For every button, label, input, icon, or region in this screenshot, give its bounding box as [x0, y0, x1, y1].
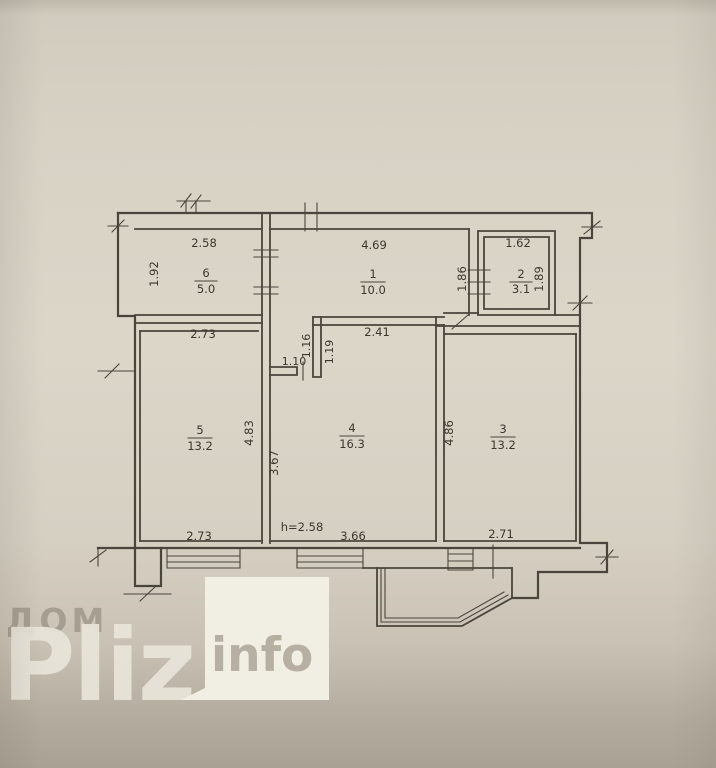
room6-left-dim: 1.92 — [147, 261, 161, 287]
watermark-pliz-text: Pliz — [2, 616, 194, 716]
room6-area: 5.0 — [197, 282, 215, 296]
room3-number: 3 — [499, 422, 506, 436]
room2-top-dim: 1.62 — [505, 236, 531, 250]
room5-area: 13.2 — [187, 439, 213, 453]
room6-number: 6 — [202, 266, 209, 280]
room5-bottom-dim: 2.73 — [186, 529, 212, 543]
room4-bottom-dim: 3.66 — [340, 529, 366, 543]
room4-top-dim: 2.41 — [364, 325, 390, 339]
room2-right-dim: 1.89 — [532, 266, 546, 292]
window-room5 — [167, 548, 240, 568]
room3-bottom-dim: 2.71 — [488, 527, 514, 541]
room5-right-dim: 4.83 — [242, 420, 256, 446]
room4-area: 16.3 — [339, 437, 365, 451]
room1-top-dim: 4.69 — [361, 238, 387, 252]
room6-top-dim: 2.58 — [191, 236, 217, 250]
room4-left-dim: 3.67 — [267, 450, 281, 476]
window-balcony-door-unit — [448, 548, 473, 570]
watermark-info-box: info — [205, 577, 329, 700]
room4-number: 4 — [348, 421, 355, 435]
room4-ceiling-height: h=2.58 — [281, 520, 324, 534]
scanned-paper-background: 2.58 1.92 6 5.0 4.69 1 10.0 1.86 1.62 2 … — [0, 0, 716, 768]
balcony-bay-window — [363, 568, 512, 626]
nook-right-dim: 1.19 — [323, 340, 336, 365]
window-room4 — [297, 548, 363, 568]
room3-area: 13.2 — [490, 438, 516, 452]
room5-top-dim: 2.73 — [190, 327, 216, 341]
room1-right-dim: 1.86 — [455, 266, 469, 292]
room5-number: 5 — [196, 423, 203, 437]
room2-number: 2 — [517, 267, 524, 281]
room1-area: 10.0 — [360, 283, 386, 297]
room2-area: 3.1 — [512, 282, 530, 296]
room1-number: 1 — [369, 267, 376, 281]
room3-left-dim: 4.86 — [442, 420, 456, 446]
interior-walls — [135, 213, 580, 543]
nook-width-dim: 1.10 — [282, 355, 307, 368]
watermark-info-text: info — [211, 632, 313, 679]
